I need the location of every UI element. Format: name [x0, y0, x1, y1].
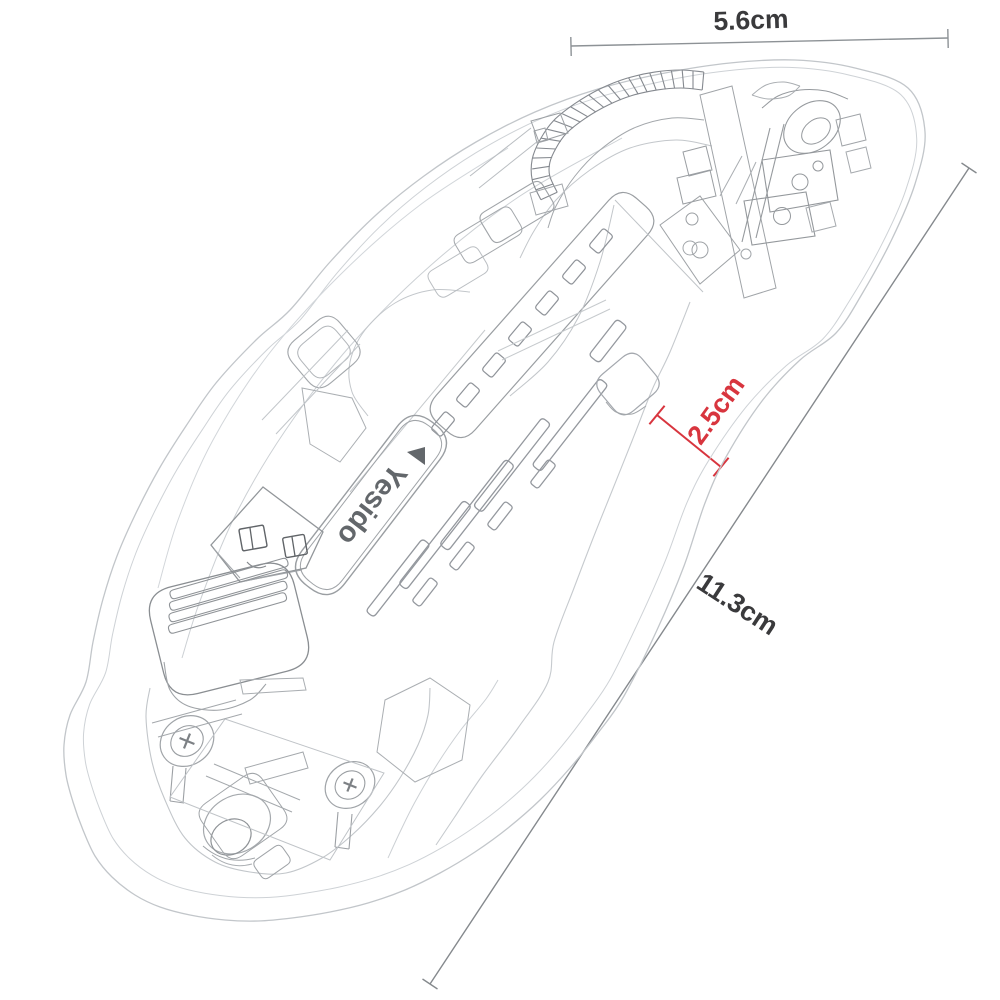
svg-text:5.6cm: 5.6cm	[713, 4, 789, 37]
svg-text:11.3cm: 11.3cm	[692, 567, 784, 641]
svg-text:2.5cm: 2.5cm	[681, 370, 750, 450]
